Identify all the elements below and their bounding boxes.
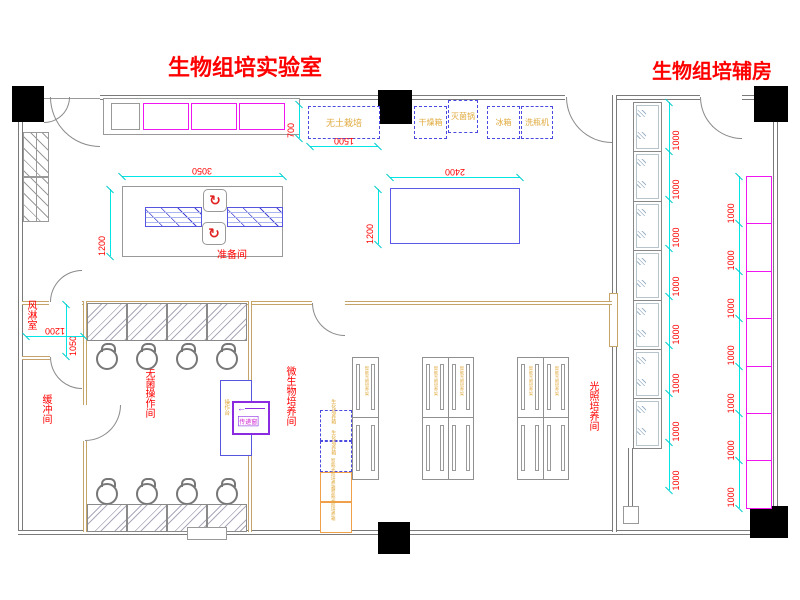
dimension-label: 1500 [310, 135, 378, 145]
equipment-label: 干燥箱 [419, 117, 443, 128]
dimension-label: 1000 [727, 223, 736, 270]
incubator-label: 智能光照培养箱 [329, 458, 336, 484]
door-arc-lab-to-aux [566, 97, 612, 143]
pass-window-line [245, 408, 265, 409]
coat-rack [23, 177, 49, 222]
dimension-label: 1200 [366, 189, 375, 244]
rack-divider [543, 357, 544, 480]
pass-window-label: 传递窗 [238, 416, 258, 426]
dimension-label: 1000 [672, 345, 681, 394]
rack-divider [352, 417, 379, 418]
room-label-buffer: 缓冲间 [40, 394, 50, 424]
dimension-label: 1000 [672, 296, 681, 345]
rack-shelf-bar [440, 364, 444, 410]
equipment-label: 无土栽培 [326, 116, 362, 129]
rack-shelf-bar [547, 364, 551, 410]
dimension-label: 1000 [672, 102, 681, 151]
center-table [390, 188, 520, 244]
door-arc-buffer [85, 405, 121, 441]
room-label-light-culture: 光照培养间 [587, 381, 597, 431]
clean-bench [207, 303, 247, 341]
glass-mark [637, 231, 646, 238]
dimension-label: 1000 [672, 248, 681, 297]
glass-mark [637, 357, 646, 364]
column [754, 86, 788, 122]
dimension-label: 1000 [672, 393, 681, 442]
dimension-label: 3050 [122, 165, 283, 175]
equipment-bottle-washer: 洗瓶机 [521, 106, 553, 139]
glass-mark [637, 209, 646, 216]
glass-mark [637, 308, 646, 315]
clean-bench [87, 504, 127, 532]
swivel-seat: ↻ [202, 222, 226, 245]
rack-label: 智能光照培养架 [432, 366, 438, 395]
dimension-label: 1000 [672, 442, 681, 491]
stool [136, 348, 158, 370]
dimension-label: 1000 [727, 366, 736, 413]
storage-counter-cell [746, 366, 772, 414]
rack-shelf-bar [356, 364, 360, 410]
incubator-label: 生化培养箱 [329, 430, 337, 457]
dimension-label: 1000 [727, 271, 736, 318]
door-arc-airshower-bottom [50, 357, 82, 389]
door-arc-micro-room [312, 303, 345, 336]
coat-rack [23, 132, 49, 177]
light-incubator: 智能光照培养箱 [320, 502, 352, 533]
glass-mark [637, 330, 646, 337]
prep-counter-sink [111, 103, 140, 130]
storage-counter-cell [746, 460, 772, 508]
bottom-wall-window [187, 527, 227, 540]
column [378, 90, 412, 124]
wall-airshower-bottom [22, 356, 50, 360]
column [12, 86, 44, 122]
clean-bench [127, 504, 167, 532]
floor-plan: 生物组培实验室 生物组培辅房 无土栽培 干燥箱 灭菌锅 冰箱 洗瓶机 ↻ ↻ 准… [0, 0, 800, 600]
rack-shelf-bar [356, 425, 360, 471]
prep-bench [145, 207, 202, 227]
equipment-label: 冰箱 [496, 117, 512, 128]
stool [216, 483, 238, 505]
rack-shelf-bar [547, 425, 551, 471]
equipment-drying-oven: 干燥箱 [414, 106, 447, 139]
storage-counter-cell [746, 176, 772, 224]
prep-counter-cell [143, 103, 189, 130]
glass-mark [637, 406, 646, 413]
swivel-seat: ↻ [203, 189, 227, 212]
rack-shelf-bar [466, 425, 470, 471]
column [378, 522, 410, 554]
dimension-label: 700 [287, 104, 296, 138]
rack-shelf-bar [561, 425, 565, 471]
rack-divider [448, 357, 449, 480]
room-label-prep: 准备间 [200, 246, 264, 261]
glass-mark [637, 132, 646, 139]
stool [136, 483, 158, 505]
dimension-line [390, 177, 520, 178]
rack-shelf-bar [371, 425, 375, 471]
dimension-label: 1000 [727, 318, 736, 365]
rack-shelf-bar [440, 425, 444, 471]
glass-mark [637, 258, 646, 265]
rack-shelf-bar [371, 364, 375, 410]
glass-mark [637, 181, 646, 188]
door-arc-airshower-top [50, 270, 82, 302]
stool [176, 483, 198, 505]
dimension-label: 1000 [727, 460, 736, 507]
equipment-label: 洗瓶机 [525, 117, 549, 128]
glass-mark [637, 280, 646, 287]
rack-label: 智能光照培养架 [458, 366, 464, 395]
rack-shelf-bar [535, 364, 539, 410]
transfer-bench-label: 操作台 [222, 399, 230, 416]
clean-bench [127, 303, 167, 341]
stool [176, 348, 198, 370]
dimension-label: 1000 [727, 413, 736, 460]
dimension-label: 1000 [727, 176, 736, 223]
prep-counter-cell [191, 103, 237, 130]
wall-right [773, 95, 778, 532]
dimension-label: 2400 [390, 166, 520, 176]
storage-counter-cell [746, 223, 772, 271]
clean-bench [167, 303, 207, 341]
pass-window: ← 传递窗 [232, 401, 270, 435]
rack-shelf-bar [426, 364, 430, 410]
rack-shelf-bar [466, 364, 470, 410]
prep-bench [227, 207, 283, 227]
dimension-line [378, 189, 379, 244]
aux-room-title: 生物组培辅房 [627, 55, 797, 84]
door-arc-aux-entrance [700, 97, 742, 139]
rack-shelf-bar [426, 425, 430, 471]
bio-incubator: 生化培养箱 [320, 441, 352, 472]
glass-mark [637, 110, 646, 117]
stool [216, 348, 238, 370]
glass-mark [637, 428, 646, 435]
dimension-label: 1200 [98, 189, 107, 256]
storage-counter-cell [746, 413, 772, 461]
main-room-title: 生物组培实验室 [115, 50, 375, 82]
dimension-line [110, 189, 111, 256]
stool [96, 483, 118, 505]
equipment-label: 灭菌锅 [451, 111, 475, 122]
room-label-sterile-op: 无菌操作间 [143, 368, 153, 418]
rack-shelf-bar [452, 364, 456, 410]
column [750, 506, 788, 538]
glass-mark [637, 159, 646, 166]
dimension-label: 1000 [672, 199, 681, 248]
dimension-label: 1000 [672, 151, 681, 200]
clean-bench [87, 303, 127, 341]
prep-counter-cell [239, 103, 285, 130]
wall-aux-stub [628, 448, 633, 508]
wall-aux-stub-foot [623, 506, 639, 524]
room-label-micro-culture: 微生物培养间 [284, 366, 294, 426]
glass-mark [637, 379, 646, 386]
incubator-label: 智能光照培养箱 [329, 489, 336, 515]
dimension-line [26, 336, 84, 337]
equipment-sterilizer: 灭菌锅 [448, 100, 478, 133]
equipment-refrigerator: 冰箱 [487, 106, 520, 139]
rack-shelf-bar [452, 425, 456, 471]
dimension-line [310, 146, 378, 147]
storage-counter-cell [746, 271, 772, 319]
rack-shelf-bar [535, 425, 539, 471]
rack-shelf-bar [521, 425, 525, 471]
rack-label: 智能光照培养架 [527, 366, 533, 395]
storage-counter-cell [746, 318, 772, 366]
wall-internal-h3 [345, 301, 612, 305]
light-incubator: 智能光照培养箱 [320, 472, 352, 502]
stool [96, 348, 118, 370]
rack-label: 智能光照培养架 [553, 366, 559, 395]
rack-shelf-bar [521, 364, 525, 410]
rack-label: 智能光照培养架 [363, 366, 369, 395]
wall-top-b [612, 95, 700, 100]
dimension-line [122, 176, 283, 177]
dimension-line [299, 104, 300, 138]
incubator-label: 生化培养箱 [329, 399, 337, 426]
dimension-label: 1200 [26, 325, 84, 335]
rack-shelf-bar [561, 364, 565, 410]
